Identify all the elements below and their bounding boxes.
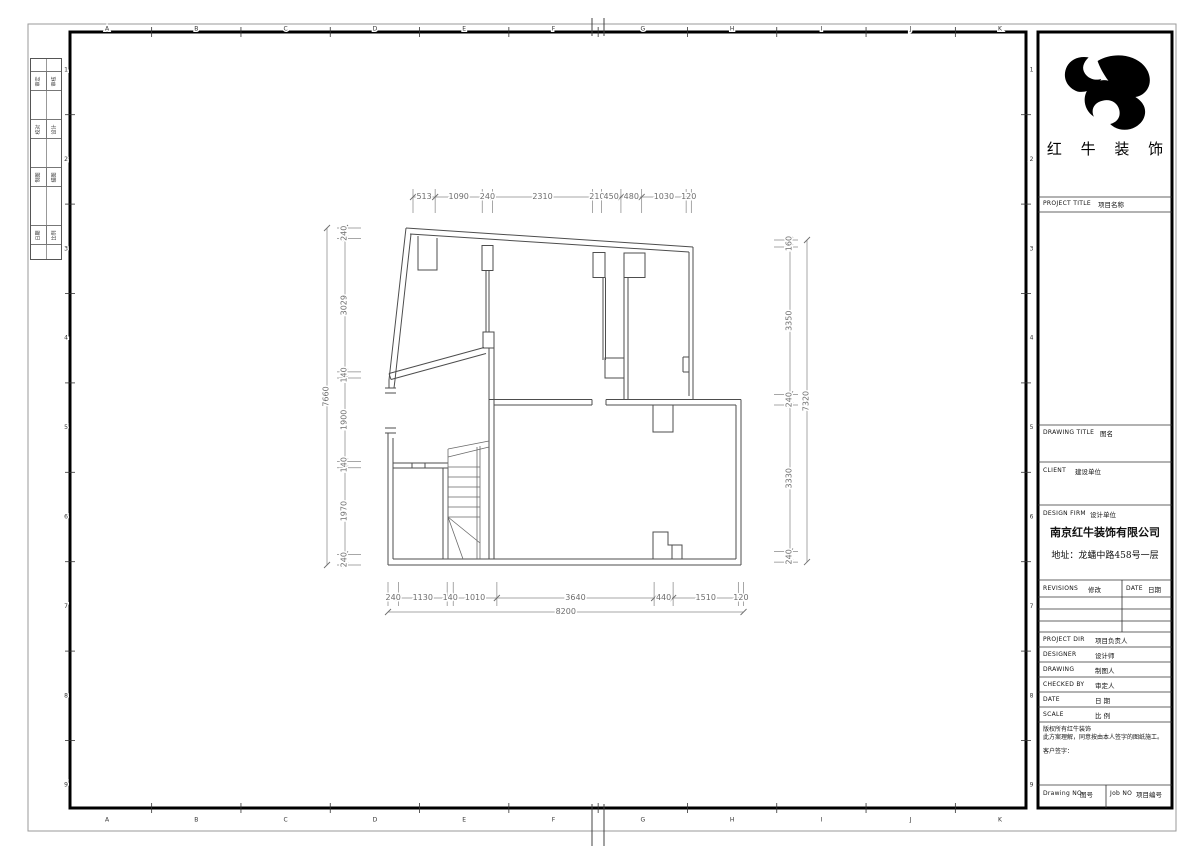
- scale-label-zh: 比 例: [1095, 710, 1110, 720]
- revisions-label-zh: 修改: [1088, 584, 1101, 594]
- grid-number-right-5: 5: [1030, 424, 1034, 431]
- signature-cell: 审核: [46, 72, 62, 90]
- signature-cell-label: 比例: [50, 230, 57, 240]
- dim-top-4: 210: [589, 192, 604, 201]
- signature-cell: 审定: [31, 72, 46, 90]
- dim-bottom-4: 3640: [565, 593, 585, 602]
- date-label-zh: 日 期: [1095, 695, 1110, 705]
- signature-row: 校对设计: [31, 119, 61, 139]
- signature-cell: 校对: [31, 120, 46, 138]
- dim-top-2: 240: [480, 192, 495, 201]
- signature-cell: 设计: [46, 120, 62, 138]
- dim-left-1: 3029: [340, 295, 349, 315]
- dim-top-5: 450: [604, 192, 619, 201]
- checked-by-label-zh: 审定人: [1095, 680, 1115, 690]
- drawing-no-label-zh: 图号: [1080, 789, 1093, 799]
- project-title-label-zh: 项目名称: [1098, 199, 1124, 209]
- signature-cell: 描图: [46, 168, 62, 186]
- grid-number-right-8: 8: [1030, 692, 1034, 699]
- grid-letter-bottom-C: C: [283, 817, 287, 824]
- dim-left-2: 140: [340, 367, 349, 382]
- grid-letter-top-B: B: [194, 26, 198, 33]
- grid-number-left-3: 3: [64, 245, 68, 252]
- checked-by-label-en: CHECKED BY: [1043, 681, 1084, 688]
- grid-letter-top-F: F: [552, 26, 556, 33]
- signature-cell-label: 日期: [35, 230, 42, 240]
- grid-letter-bottom-H: H: [730, 817, 735, 824]
- grid-letter-top-D: D: [373, 26, 378, 33]
- grid-number-right-2: 2: [1030, 156, 1034, 163]
- grid-letter-bottom-B: B: [194, 817, 198, 824]
- grid-number-right-3: 3: [1030, 245, 1034, 252]
- grid-reference-labels: AABBCCDDEEFFGGHHIIJJKK112233445566778899: [64, 26, 1034, 824]
- revisions-label-en: REVISIONS: [1043, 585, 1078, 592]
- signature-cell-label: 描图: [50, 172, 57, 182]
- dim-bottom-3: 1010: [465, 593, 485, 602]
- dim-top-7: 1030: [654, 192, 674, 201]
- signature-cell: 日期: [31, 226, 46, 244]
- dim-right-0: 160: [785, 236, 794, 251]
- grid-number-right-7: 7: [1030, 603, 1034, 610]
- copyright-line1: 版权所有红牛装饰: [1043, 726, 1169, 734]
- sheet-frame: [28, 18, 1176, 846]
- drawing-title-label-en: DRAWING TITLE: [1043, 429, 1094, 436]
- date-label-en: DATE: [1043, 696, 1060, 703]
- dim-bottom-2: 140: [443, 593, 458, 602]
- grid-letter-top-J: J: [909, 26, 912, 33]
- signature-row: 审定审核: [31, 71, 61, 91]
- drawing-label-zh: 制图人: [1095, 665, 1115, 675]
- dim-top-1: 1090: [449, 192, 469, 201]
- dim-left-4: 140: [340, 457, 349, 472]
- client-label-en: CLIENT: [1043, 467, 1066, 474]
- dim-top-0: 513: [416, 192, 431, 201]
- grid-number-left-1: 1: [64, 67, 68, 74]
- job-no-label-zh: 项目编号: [1136, 789, 1162, 799]
- dim-left-0: 240: [340, 226, 349, 241]
- dim-bottom-6: 1510: [696, 593, 716, 602]
- drawing-title-label-zh: 图名: [1100, 428, 1113, 438]
- dim-right-4: 240: [785, 549, 794, 564]
- grid-letter-top-I: I: [821, 26, 823, 33]
- grid-letter-top-H: H: [730, 26, 735, 33]
- grid-letter-bottom-A: A: [105, 817, 110, 824]
- copyright-line2: 此方案理解，同意按由本人签字的图纸施工。: [1043, 734, 1169, 742]
- drawing-no-label-en: Drawing NO: [1043, 790, 1082, 797]
- grid-number-left-9: 9: [64, 782, 68, 789]
- scale-label-en: SCALE: [1043, 711, 1064, 718]
- grid-number-left-2: 2: [64, 156, 68, 163]
- floor-plan-walls: [385, 228, 741, 565]
- signature-cell-label: 校对: [35, 124, 42, 134]
- stair-direction-lines: [448, 517, 480, 559]
- design-firm-label-zh: 设计单位: [1090, 509, 1116, 519]
- floor-plan-svg: 5131090240231021045048010301202401130140…: [0, 0, 1200, 848]
- dim-top-8: 120: [681, 192, 696, 201]
- centering-marks: [592, 18, 604, 846]
- dim-left-3: 1900: [340, 410, 349, 430]
- dimension-annotations: 5131090240231021045048010301202401130140…: [322, 189, 811, 616]
- drawing-label-en: DRAWING: [1043, 666, 1074, 673]
- project-dir-label-en: PROJECT DIR: [1043, 636, 1085, 643]
- rev-date-label-zh: 日期: [1148, 584, 1161, 594]
- dim-total-left: 7660: [322, 386, 331, 406]
- grid-number-left-5: 5: [64, 424, 68, 431]
- dim-top-6: 480: [624, 192, 639, 201]
- grid-letter-bottom-G: G: [640, 817, 645, 824]
- drawing-sheet: 5131090240231021045048010301202401130140…: [0, 0, 1200, 848]
- grid-number-right-1: 1: [1030, 67, 1034, 74]
- dim-left-5: 1970: [340, 501, 349, 521]
- grid-letter-bottom-K: K: [998, 817, 1003, 824]
- staircase: [448, 441, 489, 559]
- signature-cell: 比例: [46, 226, 62, 244]
- signature-row: 制图描图: [31, 167, 61, 187]
- client-label-zh: 建设单位: [1075, 466, 1101, 476]
- dim-right-3: 3330: [785, 468, 794, 488]
- company-logo-text: 红 牛 装 饰: [1038, 138, 1172, 159]
- signature-cell-label: 设计: [50, 124, 57, 134]
- dim-bottom-5: 440: [656, 593, 671, 602]
- company-name: 南京红牛装饰有限公司: [1038, 524, 1172, 540]
- red-bull-logo: [1065, 55, 1150, 129]
- dim-right-2: 240: [785, 392, 794, 407]
- grid-letter-bottom-F: F: [552, 817, 556, 824]
- signature-cell-label: 审定: [35, 76, 42, 86]
- signature-cell-label: 审核: [50, 76, 57, 86]
- company-address: 地址：龙蟠中路458号一层: [1038, 548, 1172, 561]
- dim-bottom-0: 240: [386, 593, 401, 602]
- grid-number-left-6: 6: [64, 514, 68, 521]
- dim-bottom-7: 120: [733, 593, 748, 602]
- grid-letter-bottom-I: I: [821, 817, 823, 824]
- project-dir-label-zh: 项目负责人: [1095, 635, 1128, 645]
- dim-total-bottom: 8200: [556, 607, 576, 616]
- designer-label-en: DESIGNER: [1043, 651, 1077, 658]
- grid-letter-top-C: C: [283, 26, 287, 33]
- grid-letter-bottom-J: J: [909, 817, 912, 824]
- dim-top-3: 2310: [532, 192, 552, 201]
- rev-date-label-en: DATE: [1126, 585, 1143, 592]
- job-no-label-en: Job NO: [1110, 790, 1132, 797]
- grid-letter-top-G: G: [640, 26, 645, 33]
- signature-cell: 制图: [31, 168, 46, 186]
- grid-number-left-4: 4: [64, 335, 68, 342]
- grid-number-left-7: 7: [64, 603, 68, 610]
- designer-label-zh: 设计师: [1095, 650, 1115, 660]
- design-firm-label-en: DESIGN FIRM: [1043, 510, 1086, 517]
- dim-right-1: 3350: [785, 311, 794, 331]
- grid-number-right-9: 9: [1030, 782, 1034, 789]
- signature-cell-label: 制图: [35, 172, 42, 182]
- grid-letter-top-E: E: [462, 26, 466, 33]
- grid-number-right-6: 6: [1030, 514, 1034, 521]
- grid-letter-bottom-D: D: [373, 817, 378, 824]
- dim-left-6: 240: [340, 552, 349, 567]
- grid-number-left-8: 8: [64, 692, 68, 699]
- dim-bottom-1: 1130: [413, 593, 433, 602]
- grid-letter-bottom-E: E: [462, 817, 466, 824]
- signature-strip: 审定审核校对设计制图描图日期比例: [30, 58, 62, 260]
- customer-sign-label: 客户签字：: [1043, 748, 1169, 756]
- grid-number-right-4: 4: [1030, 335, 1034, 342]
- dim-total-right: 7320: [802, 391, 811, 411]
- project-title-label-en: PROJECT TITLE: [1043, 200, 1091, 207]
- signature-row: 日期比例: [31, 225, 61, 245]
